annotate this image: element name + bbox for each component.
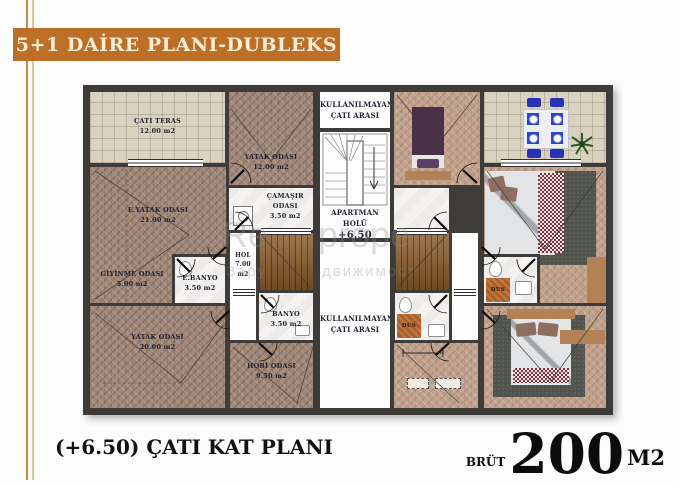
room-cati-teras: ÇATI TERAS12.00 m2	[90, 92, 225, 163]
room-yatak-odasi-alt: YATAK ODASI20.00 m2	[90, 306, 225, 408]
plant-icon	[570, 132, 594, 156]
stair-landing	[397, 228, 447, 235]
chair	[550, 98, 564, 107]
washing-machine-icon	[233, 206, 253, 226]
room-dressing-right	[394, 188, 449, 230]
room-label: HOBİ ODASI9.50 m2	[230, 361, 313, 381]
shower-dus: DUS	[397, 314, 421, 338]
sink-icon	[428, 324, 445, 337]
room-yatak-odasi-ust: YATAK ODASI12.00 m2	[229, 92, 313, 185]
chair	[527, 149, 541, 158]
dresser	[560, 330, 605, 344]
window	[454, 289, 476, 296]
plate	[553, 115, 562, 124]
stairs-left	[259, 233, 313, 290]
room-dus-1: DUS	[395, 293, 449, 340]
plate	[529, 134, 538, 143]
bed-pillow	[417, 159, 439, 168]
room-label: YATAK ODASI12.00 m2	[229, 152, 313, 172]
room-banyo: BANYO3.50 m2	[259, 293, 313, 340]
area-summary: BRÜT 200 M2	[475, 418, 665, 478]
room-label: YATAK ODASI20.00 m2	[90, 332, 225, 352]
window	[501, 159, 581, 167]
toilet-icon	[399, 297, 412, 313]
bench	[407, 378, 429, 389]
area-unit: M2	[627, 445, 665, 470]
floor-plan: ÇATI TERAS12.00 m2 YATAK ODASI12.00 m2 E…	[83, 85, 613, 415]
window	[233, 289, 255, 296]
room-storage-right	[394, 343, 478, 408]
window	[128, 159, 203, 167]
dus-label: DUS	[491, 287, 505, 293]
bed-headboard	[405, 171, 451, 180]
bed-pillow	[515, 322, 536, 337]
room-apartman-holu: APARTMANHOLÜ +6.50	[320, 132, 390, 238]
room-bedroom-purple	[394, 92, 480, 185]
shower-dus: DUS	[486, 278, 510, 302]
plate	[553, 134, 562, 143]
room-label: HOL7.00 m2	[230, 251, 256, 279]
room-hol-right	[452, 233, 478, 340]
room-hobi-odasi: HOBİ ODASI9.50 m2	[230, 343, 313, 408]
floor-title: (+6.50) ÇATI KAT PLANI	[55, 435, 333, 459]
room-kullanilmayan-alt: KULLANILMAYANÇATI ARASI	[320, 242, 390, 408]
room-dus-2: DUS	[484, 257, 537, 303]
sink-icon	[515, 281, 532, 295]
staircase-diagram	[321, 133, 389, 207]
room-label-giyinme: GİYİNME ODASI5.00 m2	[90, 269, 174, 289]
room-label: KULLANILMAYANÇATI ARASI	[320, 314, 390, 336]
room-label: BANYO3.50 m2	[259, 309, 313, 329]
plate	[529, 115, 538, 124]
bed-blanket	[538, 173, 564, 253]
room-e-banyo: E.BANYO3.50 m2	[175, 257, 225, 303]
wardrobe	[587, 257, 606, 303]
area-value: 200	[509, 431, 624, 478]
accent-line-light	[32, 0, 34, 480]
room-label: E.YATAK ODASI21.00 m2	[90, 205, 226, 225]
room-label: APARTMANHOLÜ +6.50	[320, 208, 390, 238]
toilet-icon	[489, 261, 502, 277]
room-label: ÇAMAŞIRODASI3.50 m2	[258, 191, 313, 221]
bed-headboard	[507, 309, 575, 319]
room-label: KULLANILMAYANÇATI ARASI	[320, 100, 390, 122]
room-terrace-right	[484, 92, 606, 163]
stair-landing	[261, 228, 311, 235]
stairs-right	[395, 233, 449, 290]
bed-pillow	[537, 322, 558, 337]
chair	[550, 149, 564, 158]
bed-blanket	[513, 368, 569, 383]
dus-label: DUS	[402, 323, 416, 329]
bed-pillow	[500, 186, 518, 202]
page: { "banner": { "title": "5+1 DAİRE PLANI-…	[0, 0, 679, 480]
room-camasir-odasi: ÇAMAŞIRODASI3.50 m2	[229, 188, 313, 230]
bench	[435, 378, 461, 389]
room-bedroom-bottom-right	[484, 306, 606, 408]
title-banner: 5+1 DAİRE PLANI-DUBLEKS	[13, 28, 340, 61]
room-hol: HOL7.00 m2	[230, 233, 256, 340]
brut-label: BRÜT	[466, 455, 506, 469]
accent-line-dark	[26, 0, 28, 480]
room-kullanilmayan-ust: KULLANILMAYANÇATI ARASI	[320, 92, 390, 128]
room-label: ÇATI TERAS12.00 m2	[90, 116, 225, 136]
bed	[412, 107, 444, 157]
banner-title: 5+1 DAİRE PLANI-DUBLEKS	[16, 34, 337, 56]
room-label: E.BANYO3.50 m2	[175, 273, 225, 293]
chair	[527, 98, 541, 107]
